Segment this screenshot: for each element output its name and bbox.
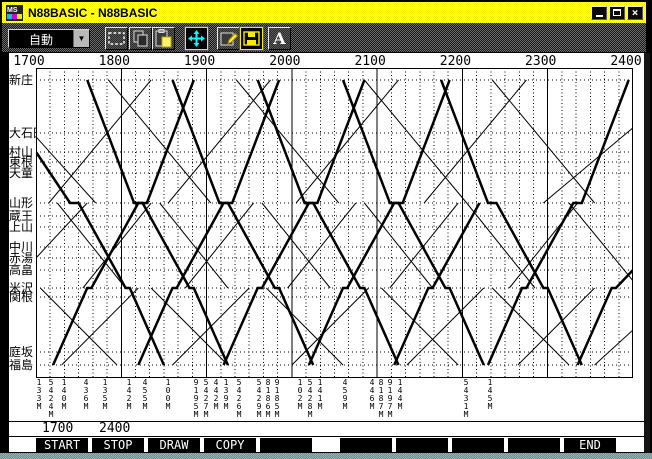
train-line (488, 80, 629, 365)
train-number-label: 5428M (305, 379, 315, 419)
station-label: 上山 (9, 221, 36, 234)
window-controls: × (591, 6, 643, 20)
selection-tool-button[interactable] (105, 27, 128, 50)
close-icon: × (632, 8, 639, 18)
train-number-label: 100M (163, 379, 173, 411)
station-label: 福島 (9, 359, 36, 372)
train-line (36, 137, 96, 203)
paste-tool-button[interactable] (152, 27, 175, 50)
fit-arrows-icon (186, 28, 207, 49)
train-number-label: 442M (211, 379, 221, 411)
train-number-label: 139M (221, 379, 231, 411)
selection-icon (106, 28, 127, 49)
train-number-label: 455M (140, 379, 150, 411)
save-tool-button[interactable] (240, 27, 263, 50)
dropdown-arrow-icon[interactable]: ▼ (73, 30, 89, 47)
train-number-label: 436M (81, 379, 91, 411)
train-number-label: 133M (34, 379, 44, 411)
station-label: 大石田 (9, 127, 36, 140)
station-label: 新庄 (9, 74, 36, 87)
properties-icon (218, 28, 239, 49)
copy-icon (130, 28, 151, 49)
train-line (578, 270, 633, 365)
font-tool-button[interactable]: A (268, 27, 291, 50)
fit-window-button[interactable] (185, 27, 208, 50)
train-line (424, 80, 526, 203)
train-line (595, 330, 633, 365)
minimize-button[interactable] (591, 6, 607, 20)
train-line (364, 80, 466, 203)
app-window: MS N88BASIC - N88BASIC × 自動 ▼ (0, 0, 652, 459)
train-line (266, 288, 343, 365)
train-line (236, 80, 338, 203)
mode-dropdown[interactable]: 自動 ▼ (8, 29, 90, 48)
copy-tool-button[interactable] (129, 27, 152, 50)
hour-label: 1700 (13, 55, 44, 68)
train-line (492, 80, 594, 203)
train-line (185, 203, 253, 288)
paste-icon (153, 28, 174, 49)
start-time-value: 1700 (42, 422, 73, 435)
train-number-label: 141M (315, 379, 325, 411)
train-line (288, 203, 356, 288)
train-number-label: 9195M (191, 379, 201, 419)
train-diagram-chart (36, 68, 633, 378)
mode-dropdown-value: 自動 (9, 31, 73, 48)
hour-label: 2200 (440, 55, 471, 68)
train-line (569, 203, 633, 281)
fkey-button-end[interactable]: END (564, 438, 616, 452)
hour-label: 2000 (269, 55, 300, 68)
hour-label: 2100 (354, 55, 385, 68)
hour-label: 1800 (99, 55, 130, 68)
maximize-icon (613, 9, 621, 16)
hour-label: 2400 (610, 55, 641, 68)
window-title: N88BASIC - N88BASIC (28, 6, 157, 20)
minimize-icon (596, 15, 603, 17)
train-number-label: 135M (100, 379, 110, 411)
fkey-button-f8[interactable] (452, 438, 504, 452)
train-number-label: 140M (59, 379, 69, 411)
train-line (292, 288, 369, 365)
maximize-button[interactable] (609, 6, 625, 20)
hour-label: 2300 (525, 55, 556, 68)
properties-tool-button[interactable] (217, 27, 240, 50)
train-number-label: 102M (295, 379, 305, 411)
station-label: 天童 (9, 167, 36, 180)
save-floppy-icon (241, 28, 262, 49)
msdos-app-icon: MS (6, 5, 23, 21)
train-line (543, 128, 633, 203)
train-number-label: 5431M (461, 379, 471, 419)
train-number-label: 9197M (385, 379, 395, 419)
title-bar: MS N88BASIC - N88BASIC × (2, 2, 646, 23)
station-label: 山形 (9, 197, 36, 210)
train-number-label: 145M (485, 379, 495, 411)
font-a-icon: A (269, 28, 290, 49)
fkey-button-f6[interactable] (340, 438, 392, 452)
fkey-button-copy[interactable]: COPY (204, 438, 256, 452)
close-button[interactable]: × (627, 6, 643, 20)
svg-text:MS: MS (7, 7, 18, 14)
train-number-label: 459M (340, 379, 350, 411)
train-line (407, 288, 484, 365)
train-line (151, 288, 228, 365)
station-label: 高畠 (9, 264, 36, 277)
train-number-label: 5426M (234, 379, 244, 419)
station-label: 関根 (9, 291, 36, 304)
fkey-button-f5[interactable] (260, 438, 312, 452)
fkey-button-start[interactable]: START (36, 438, 88, 452)
stop-time-value: 2400 (99, 422, 130, 435)
desktop-strip (0, 453, 652, 459)
fkey-button-f7[interactable] (396, 438, 448, 452)
svg-text:A: A (272, 29, 286, 48)
hour-label: 1900 (184, 55, 215, 68)
fkey-button-draw[interactable]: DRAW (148, 438, 200, 452)
fkey-separator-line (2, 436, 645, 437)
toolbar: 自動 ▼ (2, 23, 646, 53)
station-label: 庭坂 (9, 346, 36, 359)
train-line (62, 288, 139, 365)
train-number-label: 144M (395, 379, 405, 411)
left-border-bar (2, 53, 9, 453)
train-number-label: 5424M (46, 379, 56, 419)
right-border-bar (644, 53, 650, 453)
train-line (173, 288, 250, 365)
fkey-button-f9[interactable] (508, 438, 560, 452)
train-number-label: 5427M (201, 379, 211, 419)
train-number-label: 142M (124, 379, 134, 411)
fkey-button-stop[interactable]: STOP (92, 438, 144, 452)
train-number-label: 9185M (272, 379, 282, 419)
